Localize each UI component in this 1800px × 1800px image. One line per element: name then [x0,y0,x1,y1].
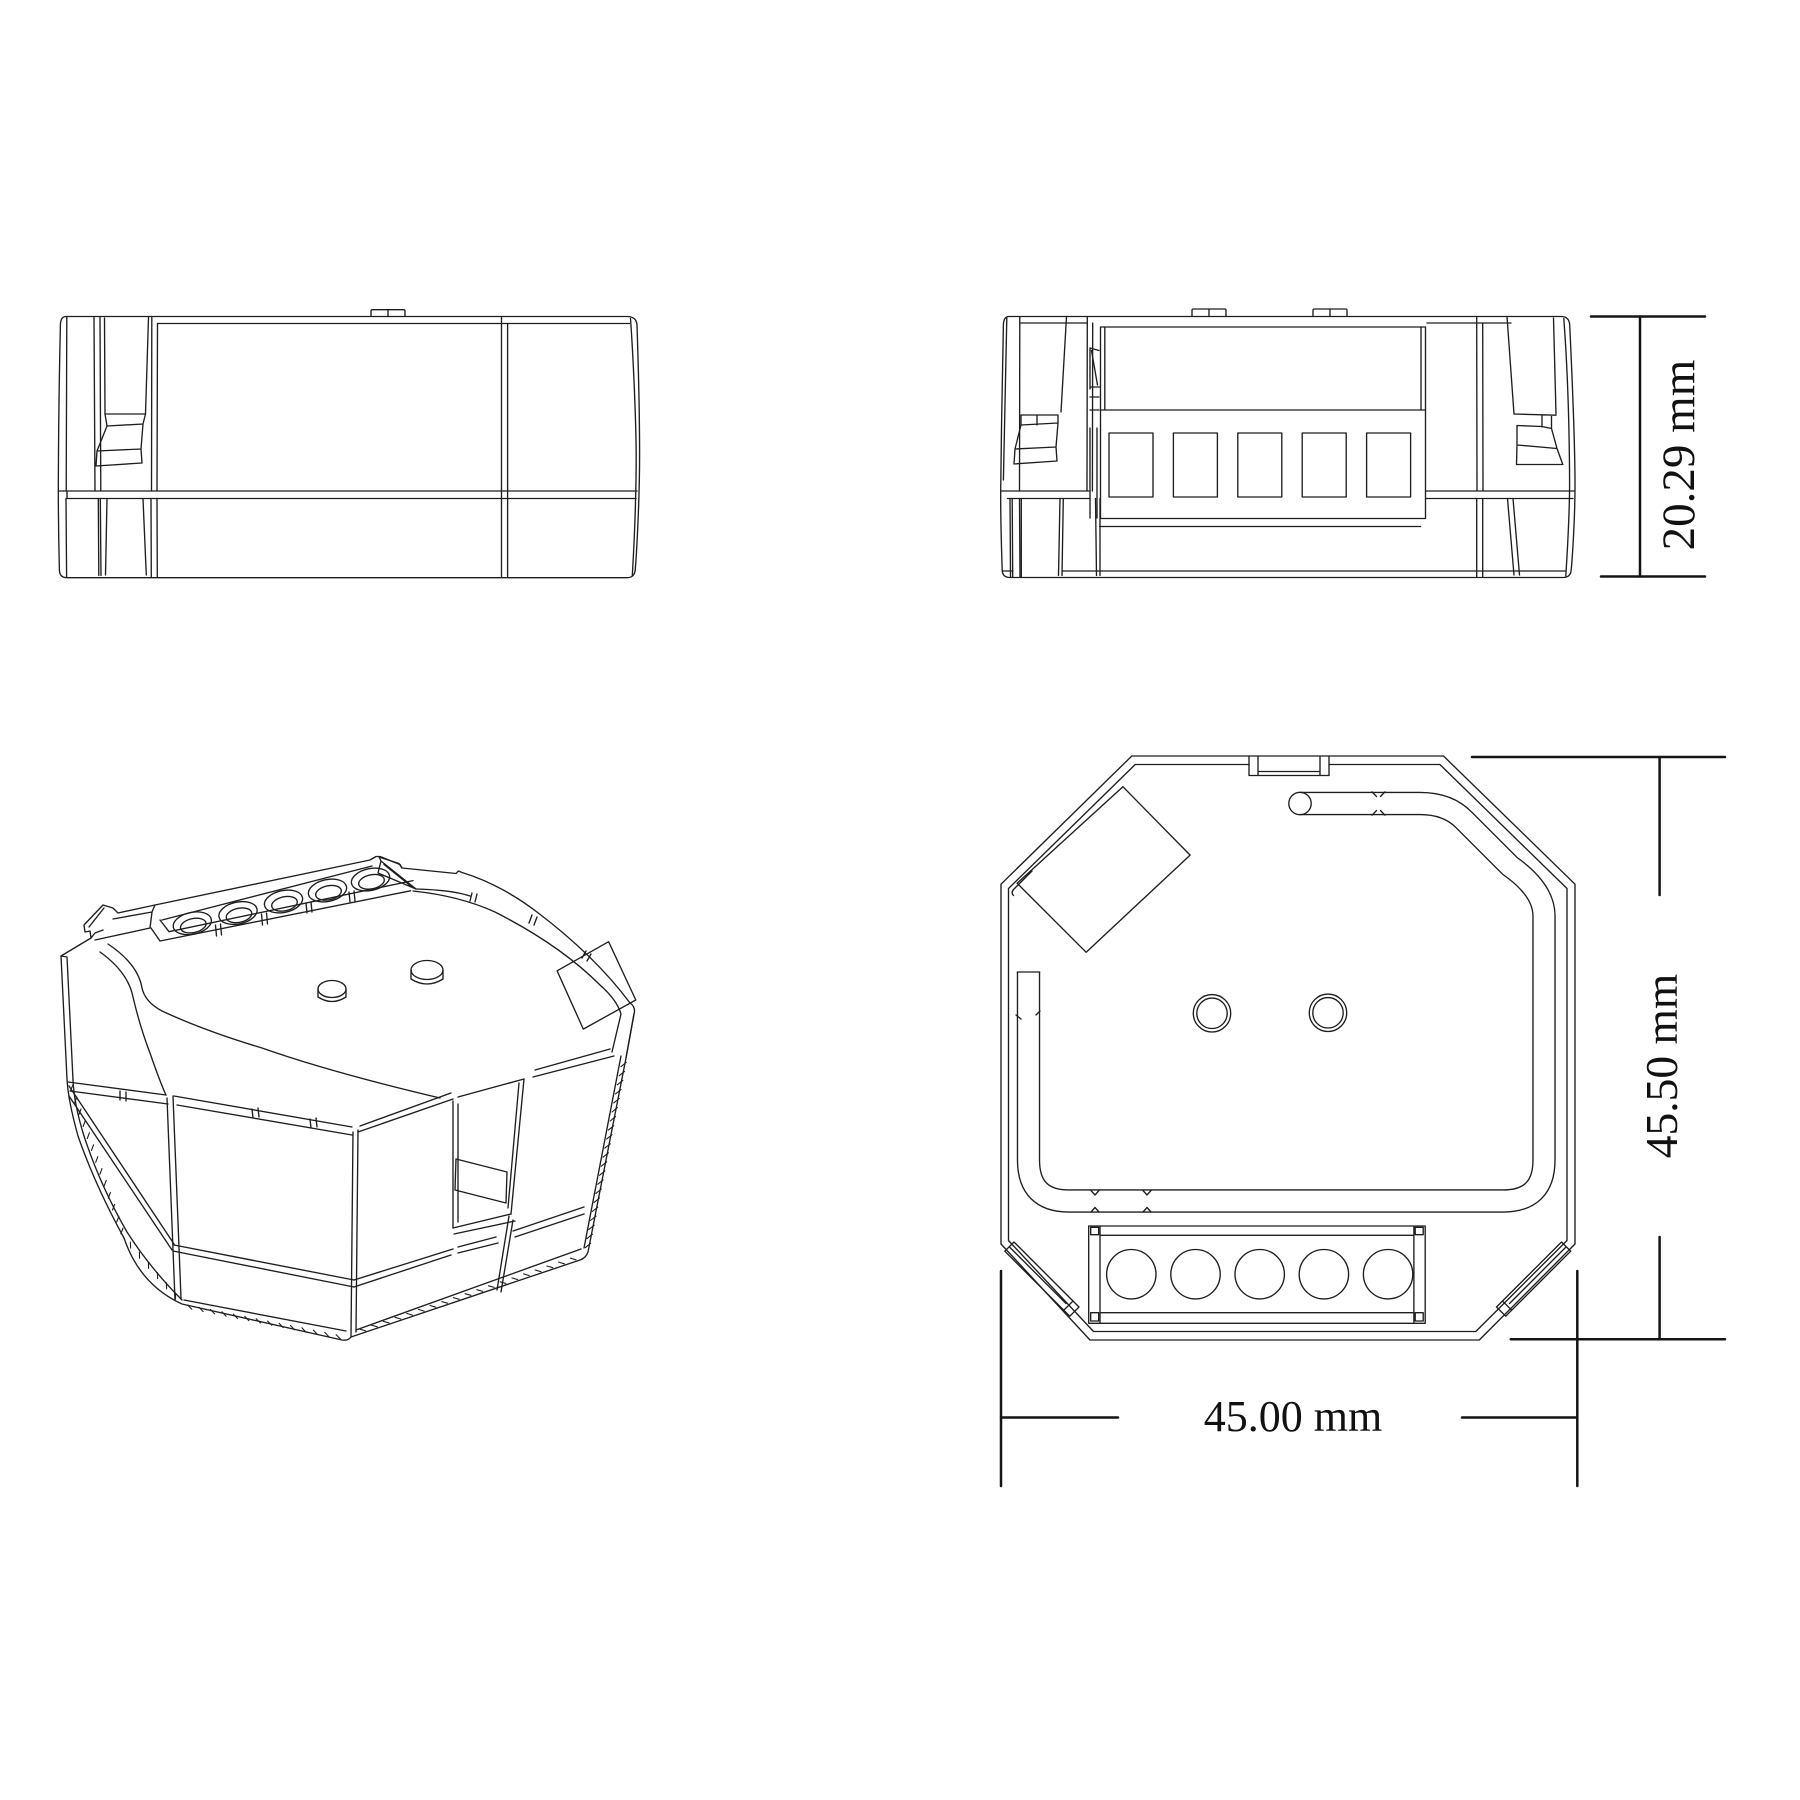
svg-text:45.50 mm: 45.50 mm [1636,974,1687,1159]
svg-text:20.29 mm: 20.29 mm [1653,360,1705,551]
svg-text:45.00 mm: 45.00 mm [1204,1392,1382,1441]
